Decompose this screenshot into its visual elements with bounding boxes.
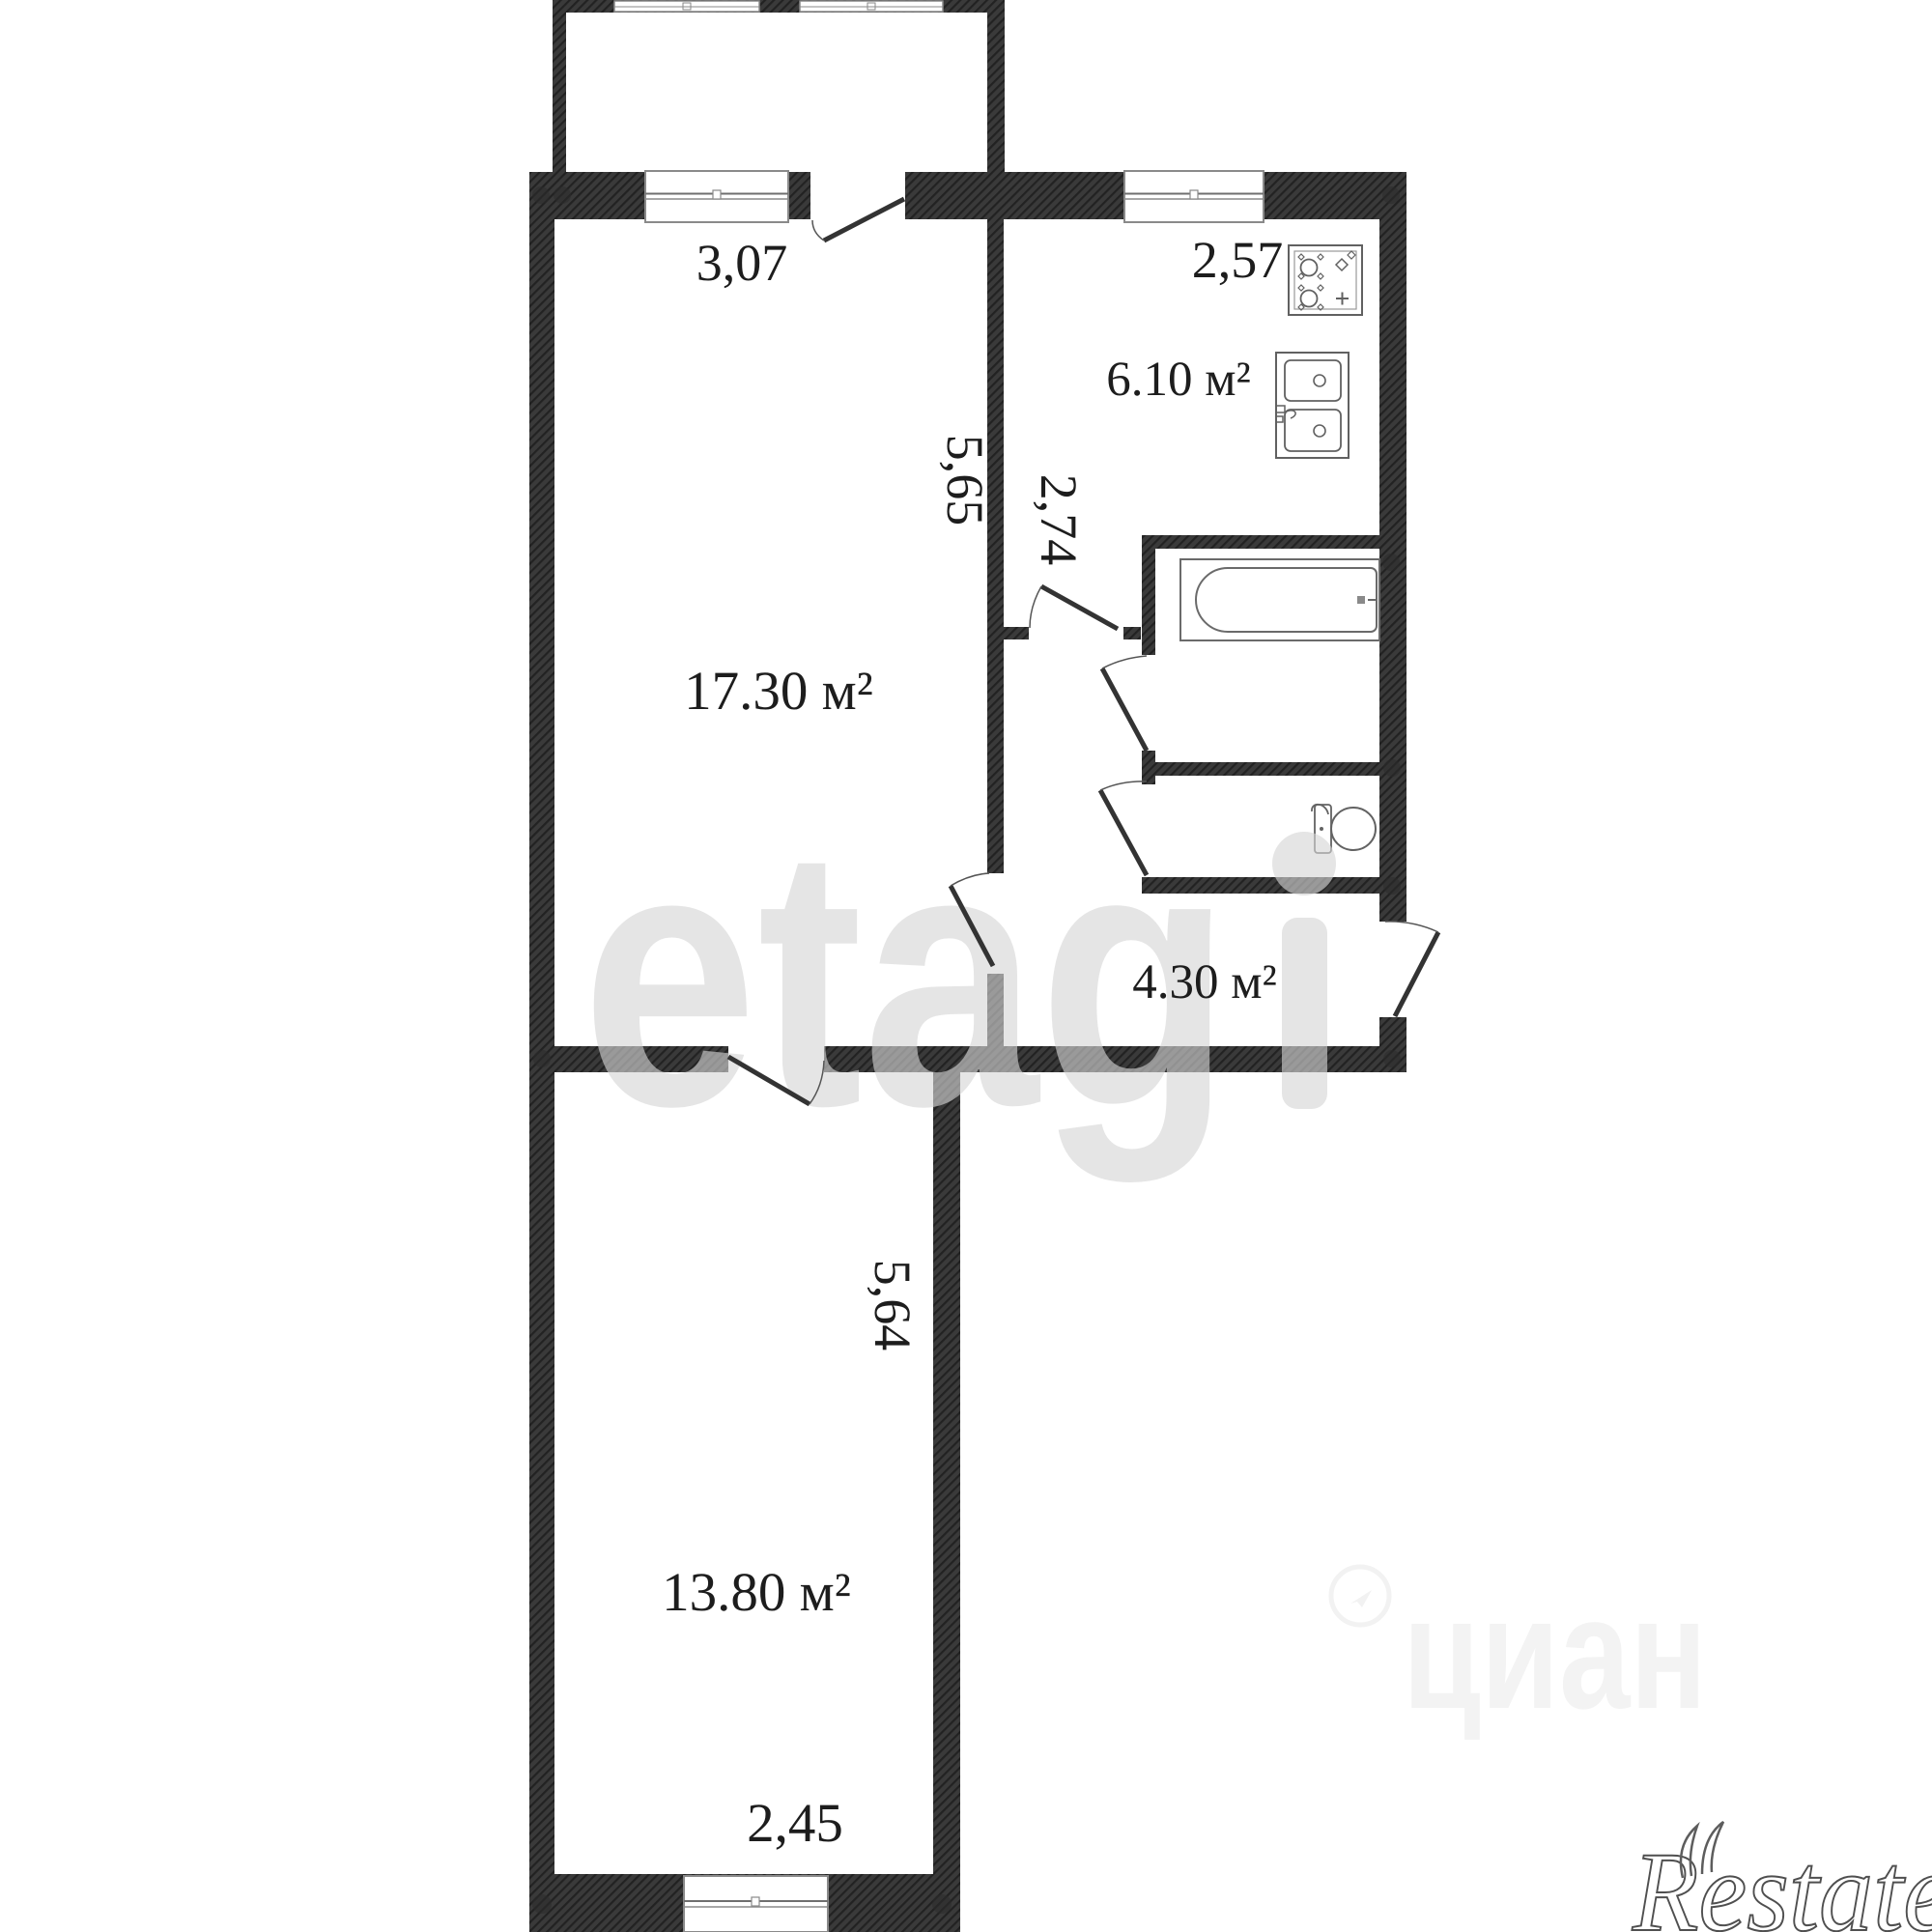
svg-text:2,57: 2,57: [1192, 231, 1284, 289]
svg-text:4.30 м²: 4.30 м²: [1132, 955, 1277, 1009]
svg-text:Restate: Restate: [1632, 1829, 1932, 1932]
svg-text:2,74: 2,74: [1030, 474, 1088, 566]
svg-text:3,07: 3,07: [696, 234, 788, 292]
svg-text:13.80 м²: 13.80 м²: [662, 1562, 851, 1623]
svg-text:6.10 м²: 6.10 м²: [1106, 353, 1251, 407]
svg-text:5,64: 5,64: [864, 1260, 922, 1351]
svg-text:2,45: 2,45: [747, 1793, 843, 1854]
svg-text:5,65: 5,65: [936, 435, 994, 526]
svg-text:17.30 м²: 17.30 м²: [684, 661, 873, 722]
svg-text:циан: циан: [1403, 1564, 1707, 1742]
